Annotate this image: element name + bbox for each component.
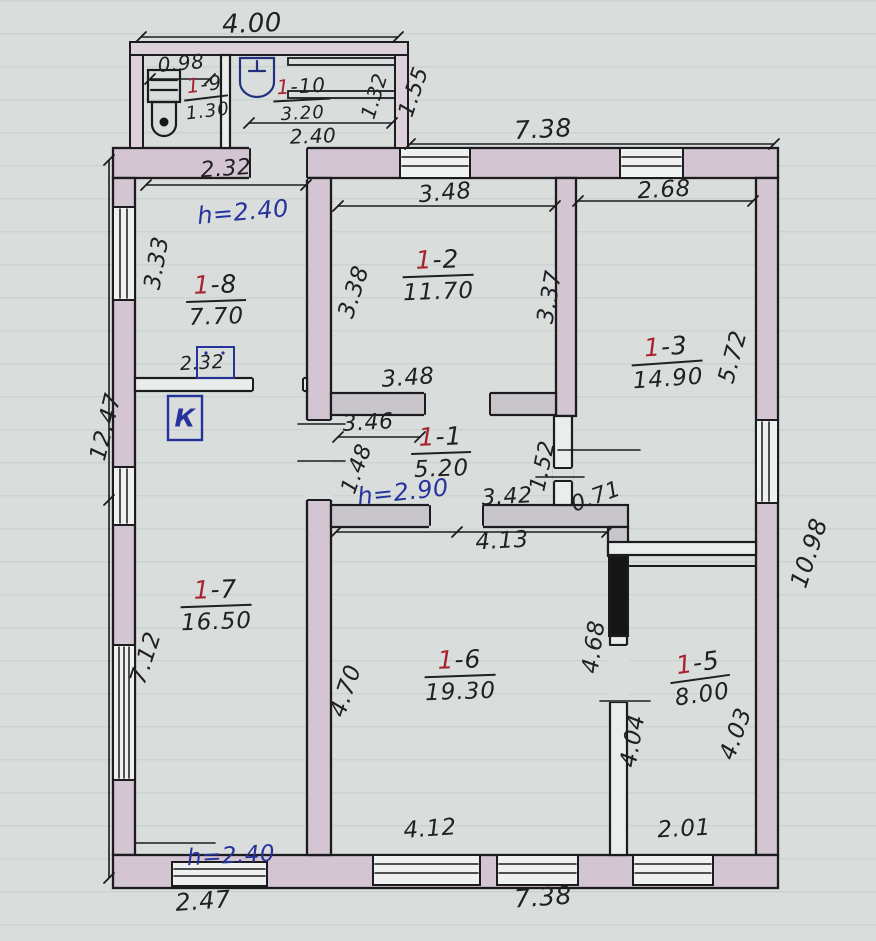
room-label-1-8: 1-8 7.70 [185, 269, 247, 331]
room-area: 11.70 [403, 276, 475, 306]
dim-r6-top: 4.13 [475, 527, 530, 556]
room-number: 1-7 [180, 574, 252, 608]
toilet-icon [148, 70, 180, 136]
dim-r3-top: 2.68 [637, 176, 692, 205]
room-area: 19.30 [425, 676, 497, 706]
dim-annex-door: 2.40 [289, 123, 336, 149]
room-label-1-7: 1-7 16.50 [180, 574, 253, 636]
boiler-symbol-label: К [175, 404, 196, 433]
height-note-porch: h=2.40 [186, 841, 275, 872]
room-number: 1-2 [402, 244, 474, 278]
room-number: 1-10 [272, 73, 331, 103]
room-label-1-2: 1-2 11.70 [402, 244, 475, 306]
dim-annex-width: 4.00 [222, 8, 283, 40]
room-label-1-10: 1-10 3.20 [272, 73, 332, 126]
room-number: 1-1 [410, 421, 471, 455]
dim-r5-bottom: 2.01 [657, 815, 712, 844]
dim-r1-top: 3.46 [342, 409, 394, 437]
room-number: 1-8 [185, 269, 246, 303]
room-area: 14.90 [632, 362, 705, 395]
room-number: 1-6 [424, 644, 496, 678]
dim-r2-bottom: 3.48 [381, 363, 436, 393]
dim-bottom-main: 7.38 [513, 881, 573, 914]
washbasin-icon [240, 58, 274, 97]
dim-porch-bottom: 2.47 [174, 885, 231, 917]
dim-r6-bottom: 4.12 [403, 814, 458, 844]
room-area: 7.70 [186, 301, 247, 331]
dim-r8-bottom: 2.32 [179, 351, 224, 375]
floor-plan-page: 4.00 0.98 1-9 1.30 1-10 3.20 2.40 1.32 1… [0, 0, 876, 941]
dim-r8-top: 2.32 [200, 155, 253, 183]
dim-top-main: 7.38 [513, 113, 572, 145]
room-label-1-3: 1-3 14.90 [630, 330, 705, 395]
room-area: 3.20 [273, 99, 332, 125]
room-area: 16.50 [181, 606, 253, 636]
room-label-1-6: 1-6 19.30 [424, 644, 497, 706]
room-label-1-9: 1-9 1.30 [181, 70, 231, 125]
room-number: 1-3 [630, 330, 703, 367]
dim-r2-top: 3.48 [417, 178, 472, 209]
room-label-1-5: 1-5 8.00 [666, 644, 734, 712]
chimney-icon [609, 556, 628, 636]
